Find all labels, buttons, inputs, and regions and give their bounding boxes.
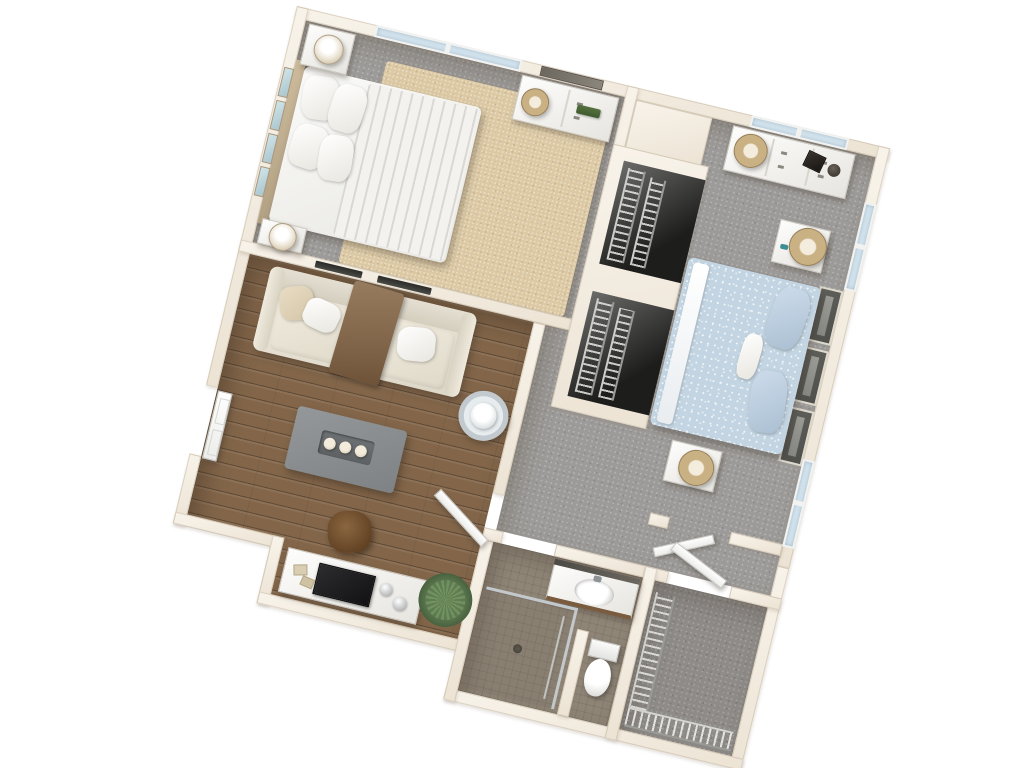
apartment-floor-plan [148,6,891,768]
floor-plan-canvas [0,0,1024,768]
tv-decor-beige-1 [293,564,307,575]
living-pillow-white-2 [396,325,437,362]
living-ottoman [328,511,372,553]
exterior-notch [148,523,270,651]
